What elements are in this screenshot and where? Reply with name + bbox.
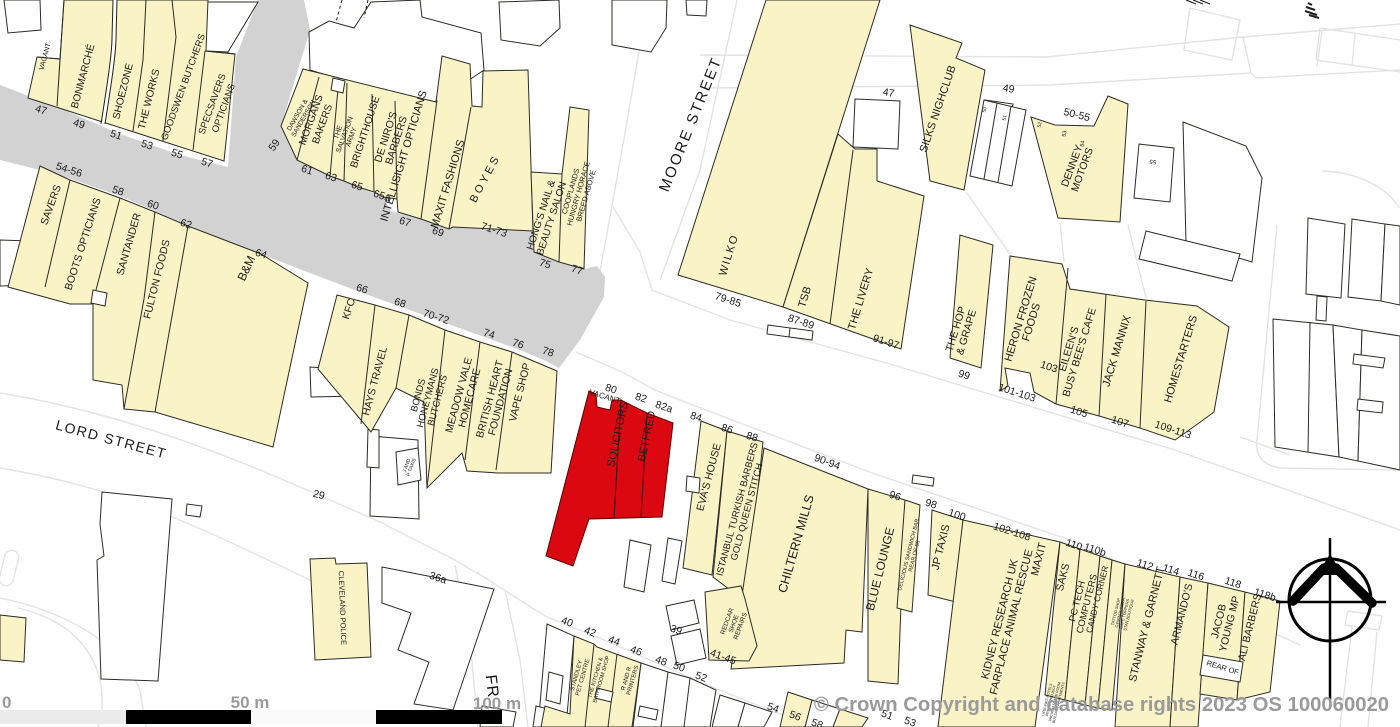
svg-text:54: 54 [1080,140,1087,147]
svg-text:47: 47 [882,86,896,100]
svg-text:53: 53 [1062,130,1069,137]
svg-text:100 m: 100 m [473,694,521,713]
svg-text:© Crown Copyright and database: © Crown Copyright and database rights 20… [814,694,1389,716]
svg-text:55: 55 [1149,158,1157,165]
svg-text:49: 49 [1002,82,1016,96]
svg-text:0: 0 [2,693,11,712]
svg-text:50 m: 50 m [231,693,270,712]
